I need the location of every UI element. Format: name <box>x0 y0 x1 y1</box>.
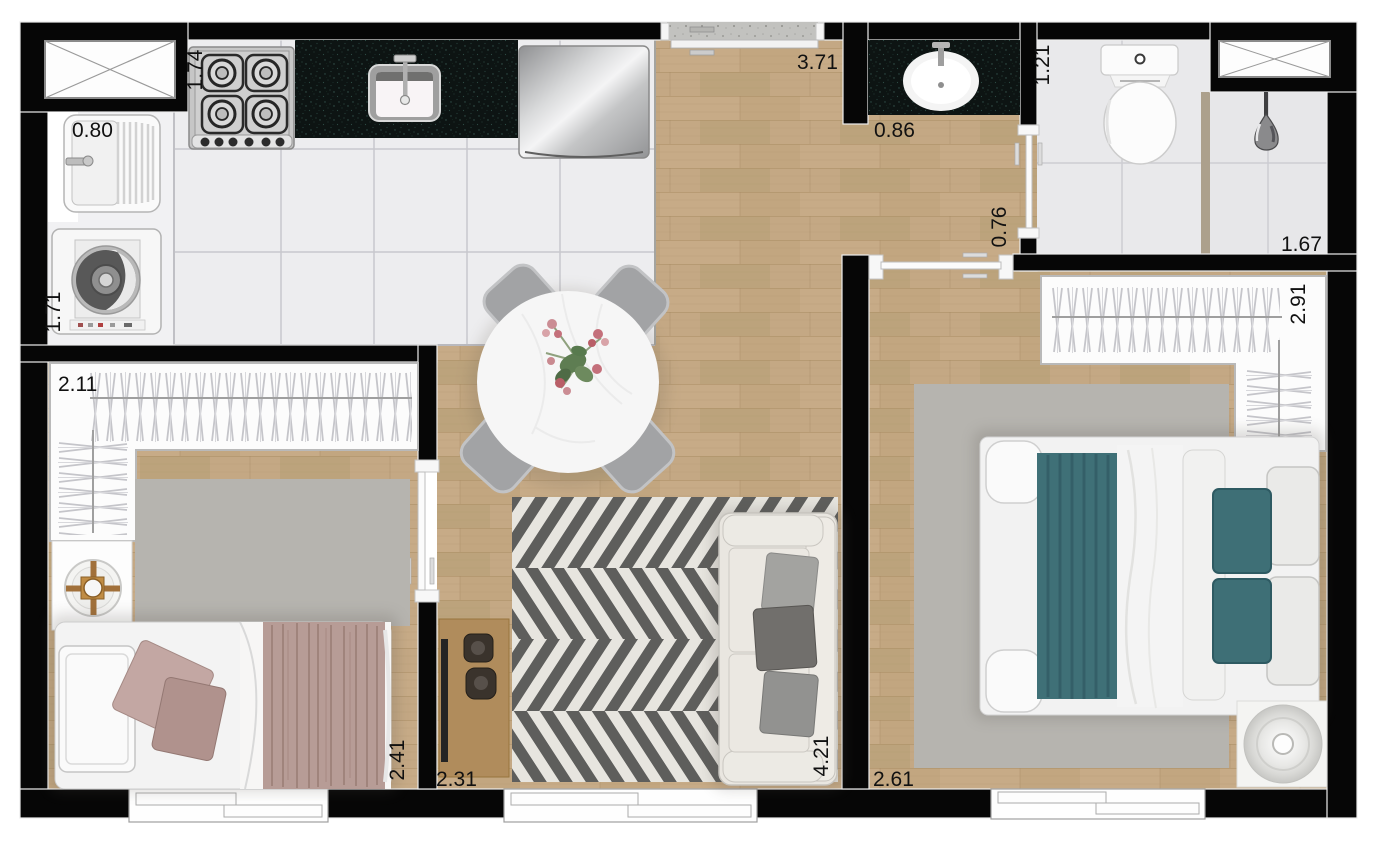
svg-text:1.67: 1.67 <box>1281 233 1322 256</box>
svg-text:2.31: 2.31 <box>436 768 477 791</box>
svg-text:2.41: 2.41 <box>386 740 409 781</box>
svg-text:0.80: 0.80 <box>72 119 113 142</box>
svg-text:3.71: 3.71 <box>797 51 838 74</box>
svg-text:0.76: 0.76 <box>988 207 1011 248</box>
svg-text:2.11: 2.11 <box>58 373 97 396</box>
svg-text:0.86: 0.86 <box>874 119 915 142</box>
svg-text:1.71: 1.71 <box>42 292 65 333</box>
svg-text:1.74: 1.74 <box>184 49 207 90</box>
svg-text:1.21: 1.21 <box>1031 45 1054 86</box>
svg-text:2.61: 2.61 <box>873 768 914 791</box>
svg-text:2.91: 2.91 <box>1287 284 1310 325</box>
svg-text:4.21: 4.21 <box>810 736 833 777</box>
